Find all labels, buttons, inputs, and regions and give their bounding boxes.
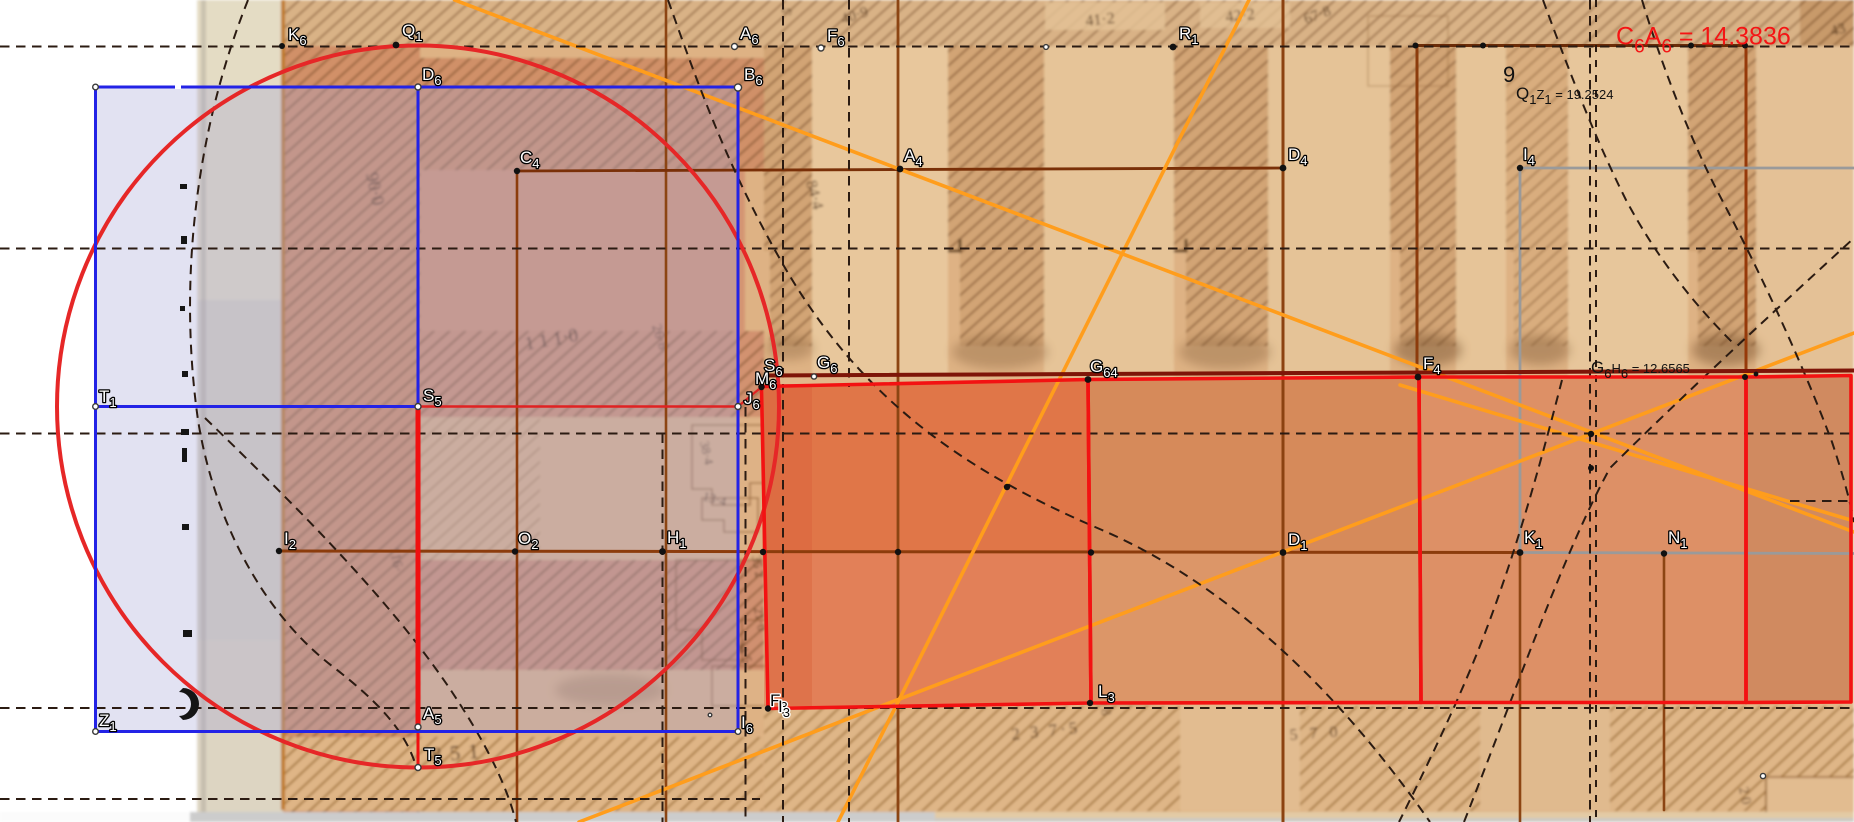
svg-text:5 7 0: 5 7 0 [1289, 723, 1342, 744]
svg-text:9: 9 [1503, 62, 1515, 87]
svg-text:41·2: 41·2 [1085, 10, 1116, 30]
